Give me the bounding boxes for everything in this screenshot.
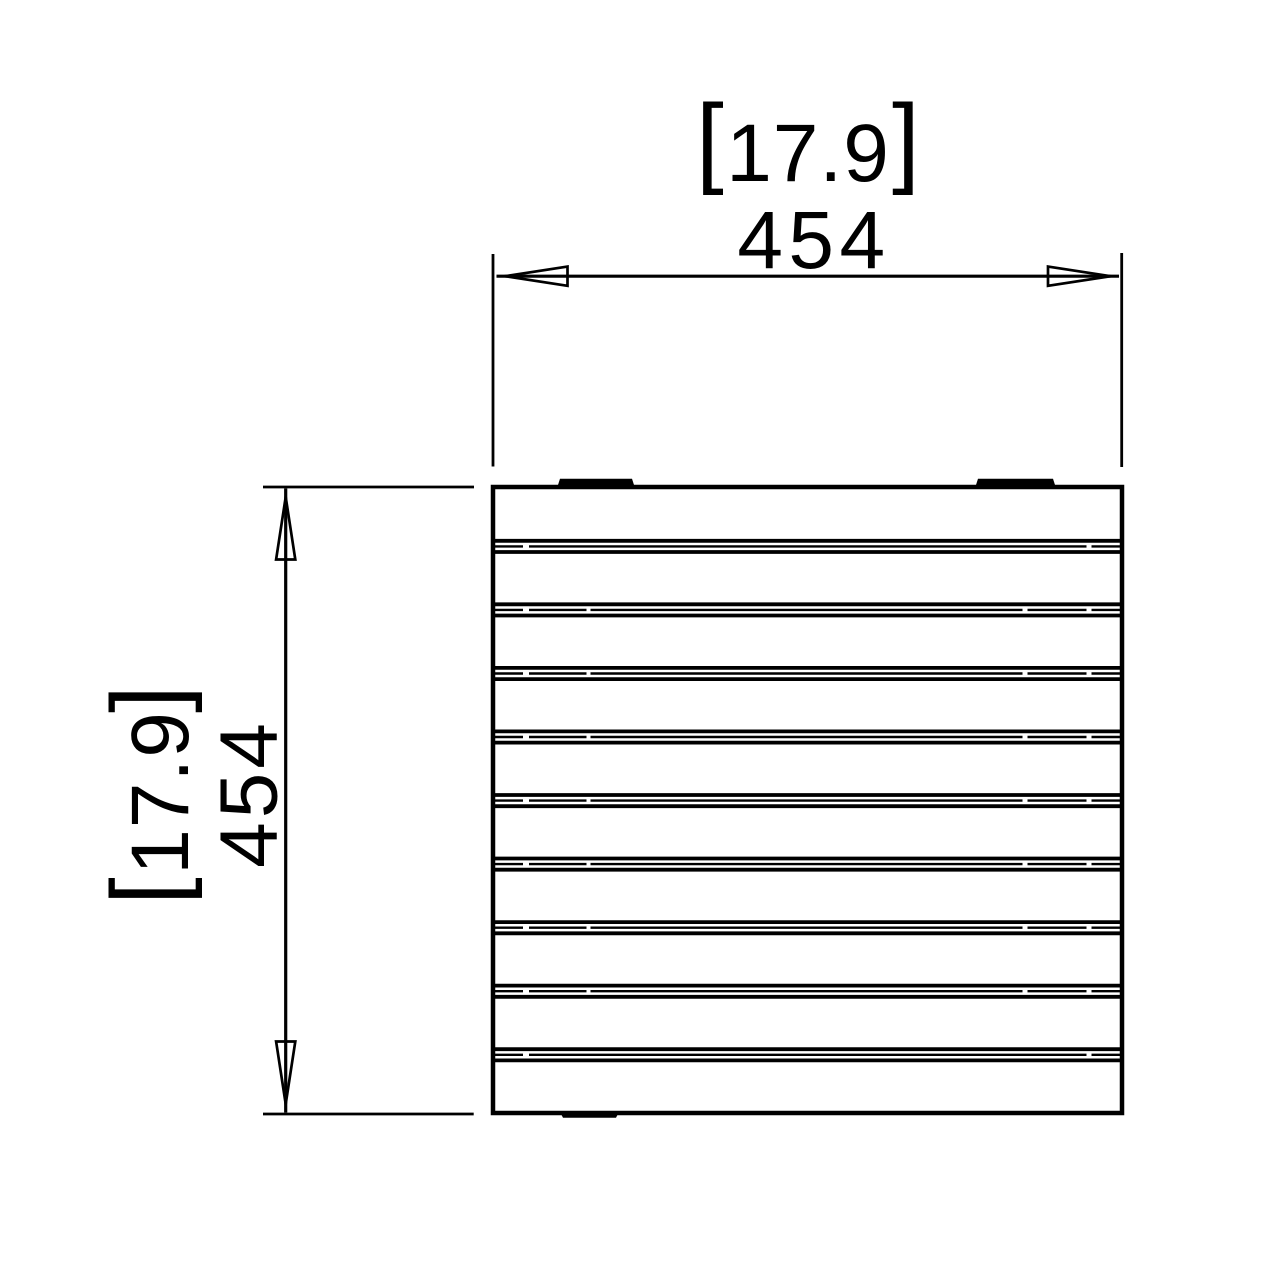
svg-text:[: [ bbox=[696, 84, 724, 196]
svg-text:]: ] bbox=[91, 685, 203, 713]
svg-text:454: 454 bbox=[737, 195, 890, 286]
svg-text:]: ] bbox=[892, 84, 920, 196]
svg-text:17.9: 17.9 bbox=[115, 711, 206, 875]
svg-text:17.9: 17.9 bbox=[726, 108, 890, 199]
svg-text:454: 454 bbox=[204, 719, 295, 868]
svg-text:[: [ bbox=[91, 877, 203, 905]
